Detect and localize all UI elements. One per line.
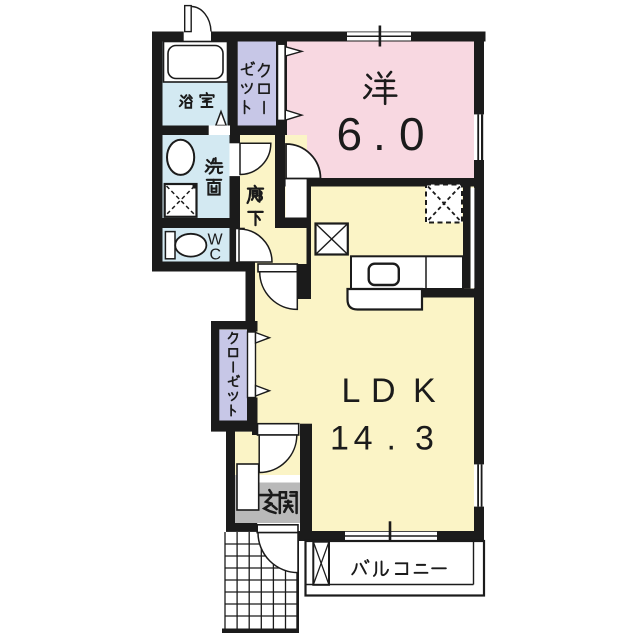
svg-text:.: . — [387, 420, 396, 458]
svg-text:6: 6 — [337, 108, 363, 160]
svg-text:1: 1 — [330, 420, 349, 458]
svg-text:K: K — [413, 372, 436, 410]
svg-text:4: 4 — [354, 420, 373, 458]
svg-text:.: . — [373, 108, 386, 160]
svg-text:L: L — [342, 372, 361, 410]
svg-text:C: C — [210, 247, 222, 264]
svg-text:0: 0 — [399, 108, 425, 160]
svg-text:3: 3 — [415, 420, 434, 458]
svg-text:D: D — [371, 372, 396, 410]
